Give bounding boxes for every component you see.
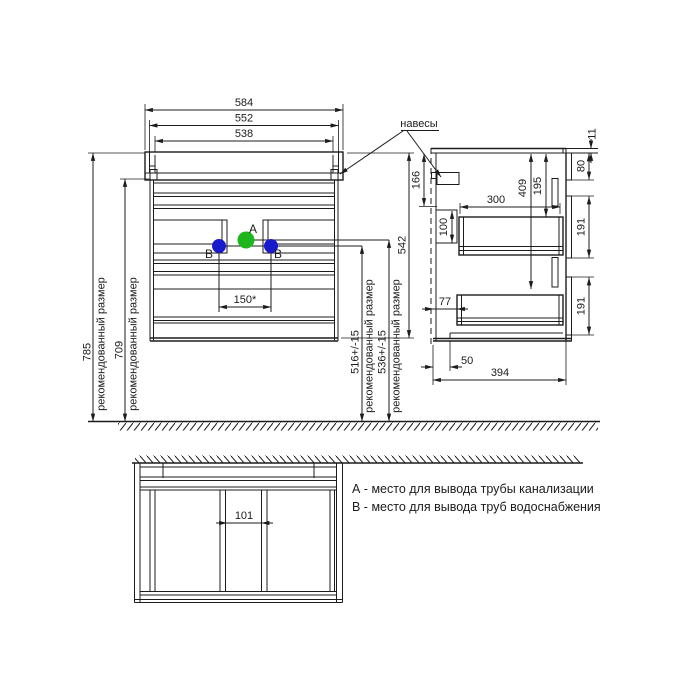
hanger-block-left — [150, 170, 157, 181]
dim-50: 50 — [461, 355, 473, 367]
side-structure — [431, 149, 598, 342]
dim-191-bottom: 191 — [576, 297, 588, 315]
dim-100: 100 — [438, 218, 450, 236]
legend-line-b: В - место для вывода труб водоснабжения — [352, 500, 601, 514]
dim-height-785: 785 — [82, 343, 94, 361]
vanity-installation-drawing: A B B 584 552 538 785 рекомендованный ра… — [0, 0, 700, 700]
hanger-block-right — [331, 170, 338, 181]
drawer-front-bottom-edge — [566, 277, 572, 335]
dim-11: 11 — [587, 128, 599, 139]
dim-height-542: 542 — [397, 236, 409, 254]
floor-line — [88, 422, 600, 431]
left-height-dimensions: 785 рекомендованный размер 709 рекомендо… — [82, 153, 151, 422]
dim-300: 300 — [487, 194, 505, 206]
hangers-label: навесы — [400, 118, 438, 130]
bottom-view: 101 — [132, 456, 583, 603]
dim-195: 195 — [532, 177, 544, 195]
dim-191-top: 191 — [576, 218, 588, 236]
wall-hatch — [135, 456, 580, 464]
point-b-water-dot-left — [212, 239, 226, 253]
recommended-note-709: рекомендованный размер — [128, 277, 140, 411]
washbasin-outline — [145, 152, 343, 180]
pipe-legend: А - место для вывода трубы канализации В… — [352, 482, 601, 514]
dim-80: 80 — [576, 160, 588, 172]
drawing-canvas: A B B 584 552 538 785 рекомендованный ра… — [0, 0, 700, 700]
floor-hatch — [118, 423, 598, 431]
point-a-label: A — [249, 222, 257, 236]
side-dimensions: 166 100 300 409 195 11 80 191 191 — [411, 128, 599, 385]
dim-width-inner: 538 — [235, 128, 253, 140]
dim-height-536: 536+/-15 — [377, 330, 389, 374]
handle-recess-top — [552, 179, 558, 207]
dim-77: 77 — [439, 296, 451, 308]
point-b-right-label: B — [274, 247, 282, 261]
bottom-structure — [135, 463, 343, 603]
hangers-callout: навесы — [340, 118, 441, 177]
dim-394: 394 — [491, 367, 509, 379]
legend-line-a: А - место для вывода трубы канализации — [352, 482, 594, 496]
front-view: A B B — [145, 152, 389, 341]
handle-recess-bottom — [552, 258, 558, 288]
recommended-note-785: рекомендованный размер — [96, 277, 108, 411]
dim-pipe-spacing-150: 150* — [234, 294, 257, 306]
point-b-left-label: B — [205, 247, 213, 261]
front-width-dimensions: 584 552 538 — [145, 97, 343, 152]
dim-101: 101 — [235, 510, 253, 522]
dim-height-516: 516+/-15 — [350, 330, 362, 374]
recommended-note-536: рекомендованный размер — [391, 279, 403, 413]
drawer-front-top-edge — [566, 196, 572, 258]
dim-166: 166 — [411, 171, 423, 189]
hanger-bracket — [437, 173, 459, 185]
pipe-outlet-points: A B B — [205, 222, 389, 312]
bottom-dimension-101: 101 — [216, 510, 273, 523]
dim-width-mid: 552 — [235, 113, 253, 125]
dim-height-709: 709 — [114, 341, 126, 359]
drawer-box-top — [459, 217, 563, 255]
dim-width-outer: 584 — [235, 97, 253, 109]
dim-409: 409 — [517, 179, 529, 197]
recommended-note-516: рекомендованный размер — [364, 279, 376, 413]
drawer-box-bottom — [457, 295, 563, 325]
